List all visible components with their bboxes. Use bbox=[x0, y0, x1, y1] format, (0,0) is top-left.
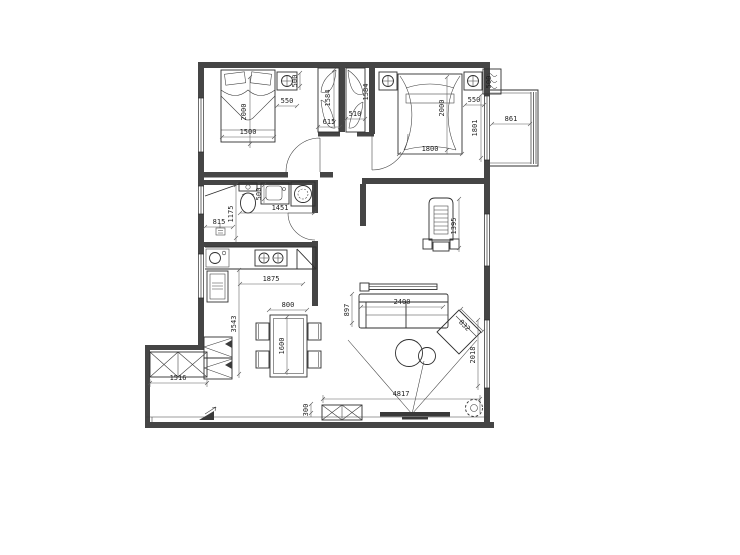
coffee-table bbox=[396, 340, 436, 367]
base-cabinet-2 bbox=[204, 358, 232, 379]
dining-chair bbox=[308, 323, 321, 340]
dim-kitchen-length: 3543 bbox=[230, 316, 238, 333]
dim-counter-width: 1875 bbox=[263, 275, 280, 283]
washbasin bbox=[261, 183, 289, 204]
dim-shower-width: 815 bbox=[213, 218, 226, 226]
kitchen-sink bbox=[206, 249, 229, 267]
dim-ns1-width: 550 bbox=[281, 97, 294, 105]
dim-bath-width: 1451 bbox=[272, 204, 289, 212]
dim-table-length: 1600 bbox=[278, 338, 286, 355]
dim-livingroom-width: 4817 bbox=[393, 390, 410, 398]
dim-bed2-width: 1800 bbox=[422, 145, 439, 153]
dim-balcony-width: 861 bbox=[505, 115, 518, 123]
dim-basin-width: 500 bbox=[255, 188, 263, 201]
dim-tv-offset: 300 bbox=[302, 404, 310, 417]
dim-piano-length: 1395 bbox=[450, 218, 458, 235]
window bbox=[484, 320, 490, 388]
dim-sofa-depth: 897 bbox=[343, 304, 351, 317]
dim-sofa-width: 2400 bbox=[394, 298, 411, 306]
bedroom2-nightstand-left bbox=[379, 72, 397, 90]
dining-chair bbox=[308, 351, 321, 368]
dim-bed1-width: 1500 bbox=[240, 128, 257, 136]
window bbox=[198, 98, 204, 152]
dim-ward1-depth: 1584 bbox=[324, 90, 332, 107]
door-arc-bathroom bbox=[288, 213, 315, 240]
dining-chair bbox=[256, 323, 269, 340]
floor-plan-drawing: 1500 550 615 510 1800 550 861 815 1451 1… bbox=[0, 0, 740, 555]
floor-plan-canvas: 1500 550 615 510 1800 550 861 815 1451 1… bbox=[0, 0, 740, 555]
window bbox=[198, 186, 204, 214]
piano-bench bbox=[423, 239, 459, 251]
dim-ward1-width: 615 bbox=[323, 118, 336, 126]
washing-machine-icon bbox=[291, 182, 315, 206]
tv-sightlines bbox=[348, 340, 477, 414]
dining-chair bbox=[256, 351, 269, 368]
dim-bed1-length: 2000 bbox=[240, 104, 248, 121]
tv-cabinet bbox=[322, 405, 362, 420]
base-cabinet-1 bbox=[204, 337, 232, 358]
bedroom2-bed bbox=[398, 74, 462, 154]
dim-closet-depth: 1584 bbox=[362, 84, 370, 101]
dim-ns1-depth: 500 bbox=[291, 75, 299, 88]
entrance-arrow-icon bbox=[199, 407, 216, 420]
fridge bbox=[207, 271, 228, 302]
window bbox=[484, 214, 490, 266]
tv bbox=[380, 412, 450, 420]
dining-table bbox=[270, 315, 307, 377]
dim-ns2-width: 550 bbox=[468, 96, 481, 104]
bedroom2-nightstand-right bbox=[464, 72, 482, 90]
window bbox=[198, 254, 204, 298]
sliding-door bbox=[360, 283, 437, 291]
door-arc-bedroom1 bbox=[286, 138, 320, 172]
dim-bath-depth: 1175 bbox=[227, 206, 235, 223]
dim-closet-width: 510 bbox=[349, 110, 362, 118]
cooktop bbox=[255, 250, 287, 266]
balcony-slider-window bbox=[484, 96, 490, 160]
dim-livingroom-window: 2018 bbox=[469, 347, 477, 364]
dim-balcony-length: 1801 bbox=[471, 120, 479, 137]
shower-partition bbox=[205, 184, 239, 196]
balcony bbox=[490, 90, 538, 166]
dim-bed2-length: 2000 bbox=[438, 100, 446, 117]
dim-ns2-depth: 500 bbox=[485, 76, 493, 89]
door-arc-bedroom2 bbox=[372, 134, 408, 170]
dim-shoecab-width: 1516 bbox=[170, 374, 187, 382]
dim-table-width: 800 bbox=[282, 301, 295, 309]
entry-step bbox=[146, 417, 487, 422]
